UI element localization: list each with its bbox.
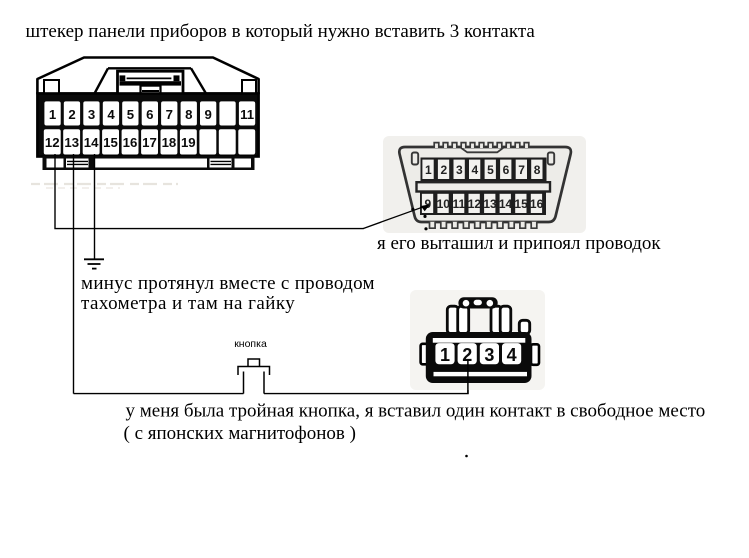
svg-text:3: 3	[484, 345, 494, 365]
svg-text:15: 15	[514, 197, 528, 211]
svg-text:14: 14	[84, 135, 99, 150]
svg-text:я его выташил и припоял провод: я его выташил и припоял проводок	[377, 233, 661, 254]
svg-text:6: 6	[503, 163, 510, 177]
svg-text:у меня была тройная кнопка, я: у меня была тройная кнопка, я вставил од…	[126, 401, 706, 422]
svg-text:11: 11	[453, 197, 466, 211]
svg-text:12: 12	[45, 135, 60, 150]
svg-text:4: 4	[107, 107, 115, 122]
svg-text:1: 1	[440, 345, 450, 365]
svg-text:14: 14	[499, 197, 513, 211]
svg-text:19: 19	[181, 135, 196, 150]
svg-text:15: 15	[103, 135, 118, 150]
svg-text:3: 3	[88, 107, 95, 122]
svg-text:4: 4	[507, 345, 517, 365]
svg-text:7: 7	[166, 107, 173, 122]
svg-text:18: 18	[162, 135, 177, 150]
svg-text:6: 6	[146, 107, 153, 122]
svg-text:2: 2	[68, 107, 75, 122]
svg-text:1: 1	[49, 107, 56, 122]
svg-text:5: 5	[127, 107, 134, 122]
svg-text:3: 3	[456, 163, 463, 177]
svg-text:13: 13	[64, 135, 79, 150]
svg-text:13: 13	[483, 197, 497, 211]
svg-text:1: 1	[425, 163, 432, 177]
svg-text:4: 4	[472, 163, 479, 177]
svg-text:10: 10	[437, 197, 451, 211]
svg-text:тахометра и там на гайку: тахометра и там на гайку	[81, 293, 295, 314]
svg-text:9: 9	[205, 107, 212, 122]
svg-text:8: 8	[185, 107, 192, 122]
svg-text:17: 17	[142, 135, 157, 150]
svg-text:5: 5	[487, 163, 494, 177]
svg-text:( с японских магнитофонов ): ( с японских магнитофонов )	[124, 423, 356, 444]
svg-text:минус протянул вместе с провод: минус протянул вместе с проводом	[81, 273, 375, 294]
svg-text:12: 12	[468, 197, 482, 211]
svg-text:16: 16	[123, 135, 138, 150]
svg-text:2: 2	[440, 163, 447, 177]
svg-text:8: 8	[534, 163, 541, 177]
svg-text:11: 11	[240, 107, 254, 122]
svg-text:кнопка: кнопка	[234, 338, 267, 350]
svg-text:16: 16	[530, 197, 544, 211]
svg-text:7: 7	[518, 163, 525, 177]
svg-text:штекер панели приборов в котор: штекер панели приборов в который нужно в…	[26, 21, 536, 42]
